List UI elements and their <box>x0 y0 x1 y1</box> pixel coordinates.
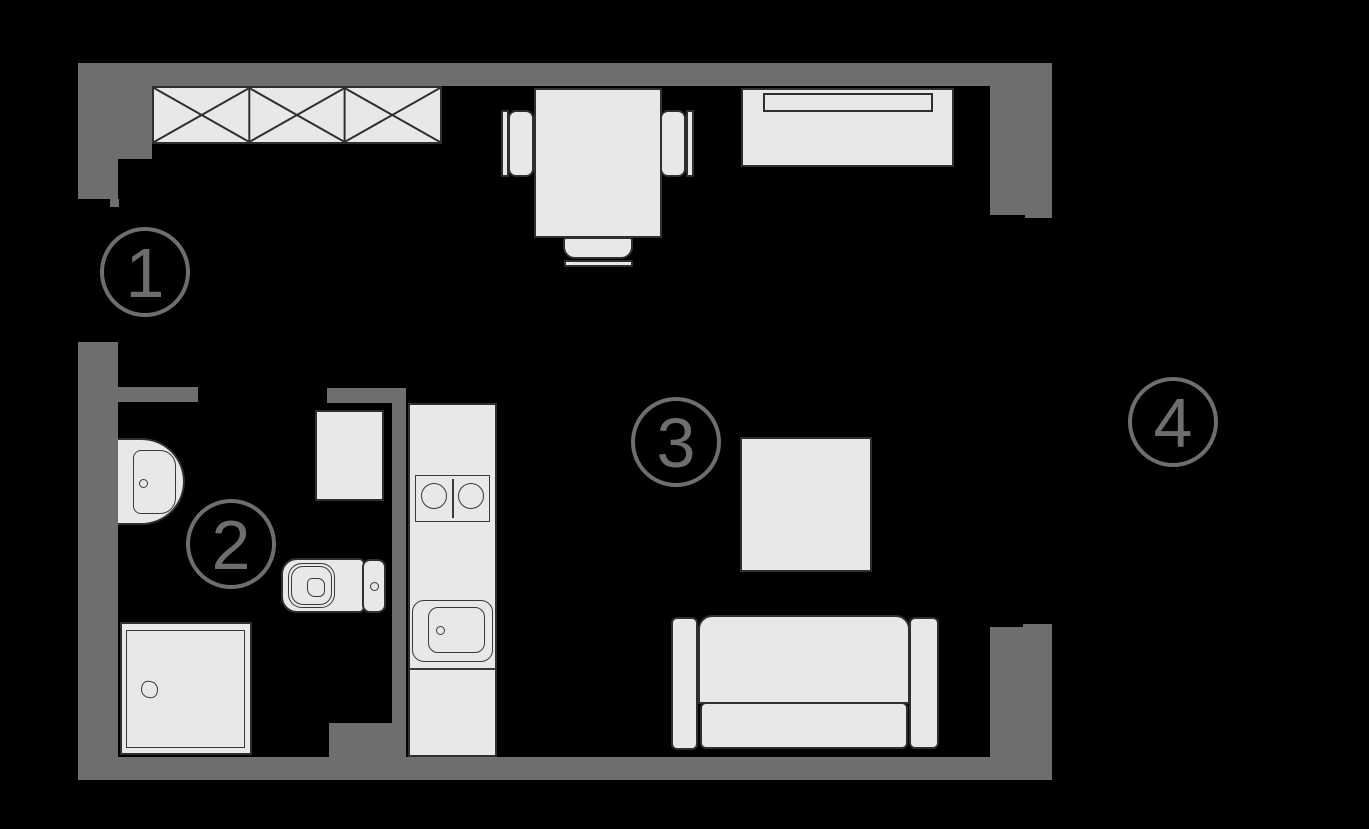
sofa-seat-icon <box>700 702 908 749</box>
dining-table-icon <box>534 88 662 238</box>
chair-seat-right-icon <box>660 110 686 177</box>
wardrobe-icon <box>152 86 442 144</box>
floor-plan: 1 2 3 4 <box>0 0 1369 829</box>
wall-entrance-jamb <box>110 199 119 207</box>
chair-seat-left-icon <box>508 110 534 177</box>
sofa-back-icon <box>698 615 910 704</box>
room-number-3: 3 <box>657 408 696 478</box>
wall-top <box>78 63 1052 86</box>
chair-back-bottom-icon <box>564 260 633 267</box>
wall-right-upper <box>990 86 1052 215</box>
sofa-armrest-left-icon <box>671 617 698 750</box>
wall-bathroom-top-left <box>118 387 198 402</box>
wall-left-lower <box>78 342 118 780</box>
room-label-1: 1 <box>100 227 190 317</box>
coffee-table-icon <box>740 437 872 572</box>
wall-right-lower <box>990 627 1052 780</box>
sofa-armrest-right-icon <box>909 617 939 749</box>
room-number-1: 1 <box>126 238 165 308</box>
toilet-water <box>307 578 325 597</box>
room-number-4: 4 <box>1154 388 1193 458</box>
washing-machine-icon <box>315 410 384 501</box>
room-label-4: 4 <box>1128 377 1218 467</box>
toilet-flush-button <box>370 582 379 591</box>
wall-right-lower-notch <box>1023 624 1052 628</box>
kitchen-sink-drain <box>436 626 445 635</box>
chair-seat-bottom-icon <box>563 237 633 259</box>
chair-back-right-icon <box>686 110 694 177</box>
room-number-2: 2 <box>212 510 251 580</box>
burner-right-icon <box>458 483 484 509</box>
counter-section-line <box>409 668 496 670</box>
wall-right-upper-notch <box>1025 215 1052 218</box>
wall-bottom <box>78 757 1052 780</box>
wall-left-upper <box>78 159 118 199</box>
wall-top-left-corner <box>78 63 152 159</box>
wall-bathroom-kitchen-divider <box>392 388 406 780</box>
kitchen-counter-icon <box>408 403 497 757</box>
wardrobe-x-pattern <box>154 88 440 142</box>
bed-pillow-icon <box>763 93 933 112</box>
washbasin-tap-icon <box>139 479 148 488</box>
room-label-2: 2 <box>186 499 276 589</box>
burner-left-icon <box>421 483 447 509</box>
room-label-3: 3 <box>631 397 721 487</box>
wall-bathroom-corner <box>329 723 406 757</box>
cooktop-divider <box>452 479 454 518</box>
